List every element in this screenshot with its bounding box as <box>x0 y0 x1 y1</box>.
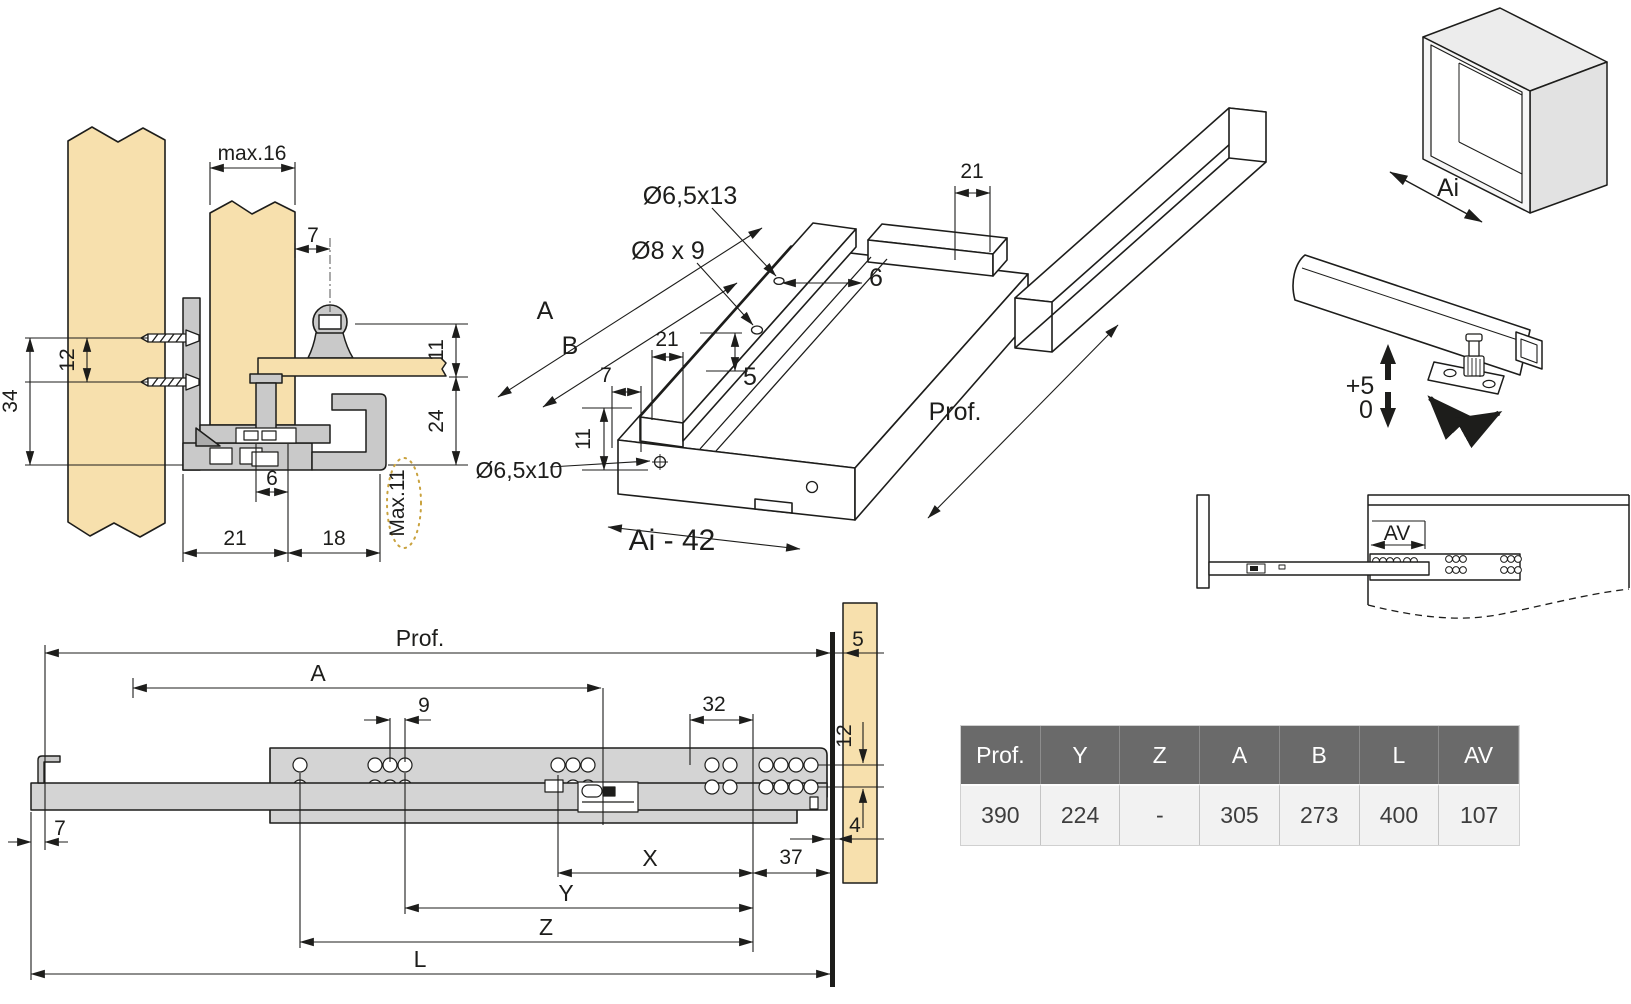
label-prof-side: Prof. <box>396 625 445 651</box>
hook-slot <box>319 315 341 329</box>
label-37: 37 <box>779 846 802 869</box>
label-11-iso: 11 <box>572 428 595 450</box>
label-24: 24 <box>425 409 448 433</box>
table-cell-l: 400 <box>1360 784 1440 845</box>
drawer-side-panel <box>210 201 295 425</box>
label-4: 4 <box>849 814 861 837</box>
label-12-side: 12 <box>833 724 856 747</box>
table-header-z: Z <box>1120 726 1200 784</box>
drawer-bottom-board <box>258 358 446 376</box>
label-6: 6 <box>266 467 278 490</box>
cabinet-panel-torn-edge <box>1368 589 1629 618</box>
label-34: 34 <box>0 389 22 413</box>
label-Y: Y <box>558 880 573 906</box>
label-21-left: 21 <box>655 328 678 351</box>
cabinet-front-line <box>830 632 835 987</box>
mounted-slide-drawing: AV <box>1197 495 1629 618</box>
label-ai: Ai <box>1437 174 1459 202</box>
table-cell-a: 305 <box>1200 784 1280 845</box>
label-ai42: Ai - 42 <box>629 524 716 557</box>
label-max11: Max.11 <box>386 469 409 536</box>
cabinet-drawing: Ai <box>1390 8 1607 222</box>
label-A-iso: A <box>537 297 554 325</box>
table-header-prof: Prof. <box>961 726 1041 784</box>
table-cell-av: 107 <box>1439 784 1519 845</box>
label-5-iso: 5 <box>743 363 757 391</box>
drawer-rail-bar <box>1209 562 1429 575</box>
label-B-iso: B <box>562 332 579 360</box>
ridge-front-face <box>640 417 683 447</box>
drawer-rail-latch-dark <box>1250 566 1258 571</box>
table-header-b: B <box>1280 726 1360 784</box>
label-hole-top: Ø6,5x13 <box>643 182 738 210</box>
drawings-canvas: max.16 7 12 34 11 24 6 21 18 Max.11 <box>0 0 1631 1004</box>
table-header-y: Y <box>1041 726 1121 784</box>
hole-front-right <box>807 482 818 493</box>
isometric-drawing: 21 Ø6,5x13 Ø8 x 9 6 A B 21 7 5 11 Ø6,5x1… <box>476 108 1266 557</box>
front-panel-edge <box>1197 495 1209 588</box>
label-18: 18 <box>322 527 345 550</box>
label-hole-front: Ø6,5x10 <box>476 457 563 483</box>
right-rail-end <box>1229 108 1266 162</box>
label-A-side: A <box>310 660 326 686</box>
front-hook <box>38 756 60 783</box>
technical-drawing-page: max.16 7 12 34 11 24 6 21 18 Max.11 <box>0 0 1631 1004</box>
table-cell-z: - <box>1120 784 1200 845</box>
label-X: X <box>642 845 657 871</box>
label-12: 12 <box>56 348 79 371</box>
label-7-side: 7 <box>54 817 66 840</box>
table-cell-y: 224 <box>1041 784 1121 845</box>
label-21-top: 21 <box>960 160 983 183</box>
label-hole-mid: Ø8 x 9 <box>631 237 705 265</box>
label-7-iso: 7 <box>600 364 612 387</box>
rotation-adjust-arrow-icon <box>1430 398 1499 420</box>
label-5-side: 5 <box>852 628 864 651</box>
adjustment-drawing: +5 0 <box>1293 255 1542 428</box>
label-6-iso: 6 <box>869 264 883 292</box>
hole-8x9 <box>752 326 763 334</box>
table-header-a: A <box>1200 726 1280 784</box>
label-zero: 0 <box>1359 396 1373 424</box>
adjust-pin <box>1464 334 1484 377</box>
label-max16: max.16 <box>218 142 287 165</box>
adjust-rail <box>1293 255 1530 375</box>
label-Z: Z <box>539 914 553 940</box>
label-L: L <box>414 946 427 972</box>
bracket-hole-right <box>1483 380 1495 387</box>
label-11: 11 <box>425 339 448 361</box>
label-32: 32 <box>702 693 725 716</box>
table-header-av: AV <box>1439 726 1519 784</box>
label-prof-iso: Prof. <box>929 398 982 426</box>
spec-table: Prof. Y Z A B L AV 390 224 - 305 273 400… <box>960 725 1520 846</box>
cabinet-panel-outline <box>1368 495 1629 605</box>
label-av: AV <box>1384 522 1410 545</box>
bracket-hole-left <box>1444 369 1456 376</box>
label-7: 7 <box>307 224 319 247</box>
cabinet-side-panel <box>68 127 165 537</box>
table-cell-prof: 390 <box>961 784 1041 845</box>
table-cell-b: 273 <box>1280 784 1360 845</box>
vertical-adjust-arrow-icon <box>1380 344 1396 428</box>
label-21: 21 <box>223 527 246 550</box>
slide-side-view-drawing: Prof. A 9 32 5 12 7 4 X 37 Y Z L <box>8 603 884 987</box>
label-9: 9 <box>418 694 430 717</box>
hook-body <box>308 333 353 358</box>
cross-section-drawing: max.16 7 12 34 11 24 6 21 18 Max.11 <box>0 127 468 562</box>
table-header-l: L <box>1360 726 1440 784</box>
